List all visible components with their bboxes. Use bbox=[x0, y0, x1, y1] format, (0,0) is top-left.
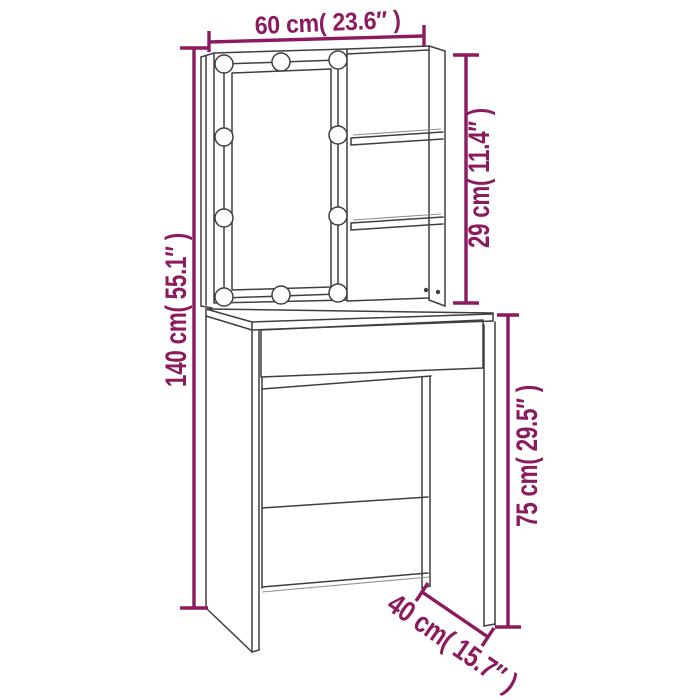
dimension-depth-tick-front bbox=[482, 628, 494, 646]
dimension-width: 60 cm( 23.6″ ) bbox=[209, 6, 424, 52]
dimension-upper-height-label: 29 cm( 11.4″ ) bbox=[463, 108, 496, 248]
mirror-cabinet bbox=[201, 46, 445, 308]
desk bbox=[206, 309, 495, 652]
led-bulb bbox=[215, 128, 233, 146]
cabinet-top-edge bbox=[347, 46, 429, 49]
led-bulb bbox=[215, 288, 233, 306]
led-bulb bbox=[272, 286, 290, 304]
cabinet-bottom-back-edge bbox=[347, 298, 429, 301]
drawer-front bbox=[261, 320, 483, 377]
cabinet-right-panel bbox=[424, 46, 445, 306]
mirror-frame bbox=[214, 49, 347, 303]
led-bulb bbox=[329, 284, 347, 302]
dimension-width-label: 60 cm( 23.6″ ) bbox=[254, 6, 401, 40]
tabletop bbox=[206, 309, 493, 330]
right-leg-panel bbox=[484, 322, 495, 626]
dimension-total-height-label: 140 cm( 55.1″ ) bbox=[160, 233, 193, 387]
dimension-table-height: 75 cm( 29.5″ ) bbox=[495, 315, 544, 627]
led-bulb bbox=[329, 51, 347, 69]
led-bulb bbox=[329, 126, 347, 144]
vanity-table-line-drawing: 60 cm( 23.6″ ) 140 cm( 55.1″ ) 29 cm( 11… bbox=[0, 0, 700, 700]
cam-hole bbox=[424, 288, 428, 292]
cabinet-top-edge-inner bbox=[347, 50, 429, 54]
led-bulb bbox=[215, 55, 233, 73]
led-bulb bbox=[329, 207, 347, 225]
led-bulb bbox=[215, 209, 233, 227]
apron-rail bbox=[262, 376, 431, 389]
dimension-diagram: 60 cm( 23.6″ ) 140 cm( 55.1″ ) 29 cm( 11… bbox=[0, 0, 700, 700]
led-bulbs bbox=[215, 51, 347, 306]
cam-hole bbox=[436, 290, 440, 294]
back-panel bbox=[262, 376, 430, 588]
stretcher-panel bbox=[262, 497, 429, 592]
dimension-table-height-label: 75 cm( 29.5″ ) bbox=[511, 385, 544, 527]
led-bulb bbox=[272, 53, 290, 71]
left-leg-panel bbox=[206, 316, 259, 652]
dimension-depth: 40 cm( 15.7″ ) bbox=[381, 583, 523, 699]
cabinet-left-panel bbox=[201, 53, 214, 308]
dimension-depth-label: 40 cm( 15.7″ ) bbox=[381, 588, 523, 699]
dimension-upper-height: 29 cm( 11.4″ ) bbox=[453, 55, 496, 303]
